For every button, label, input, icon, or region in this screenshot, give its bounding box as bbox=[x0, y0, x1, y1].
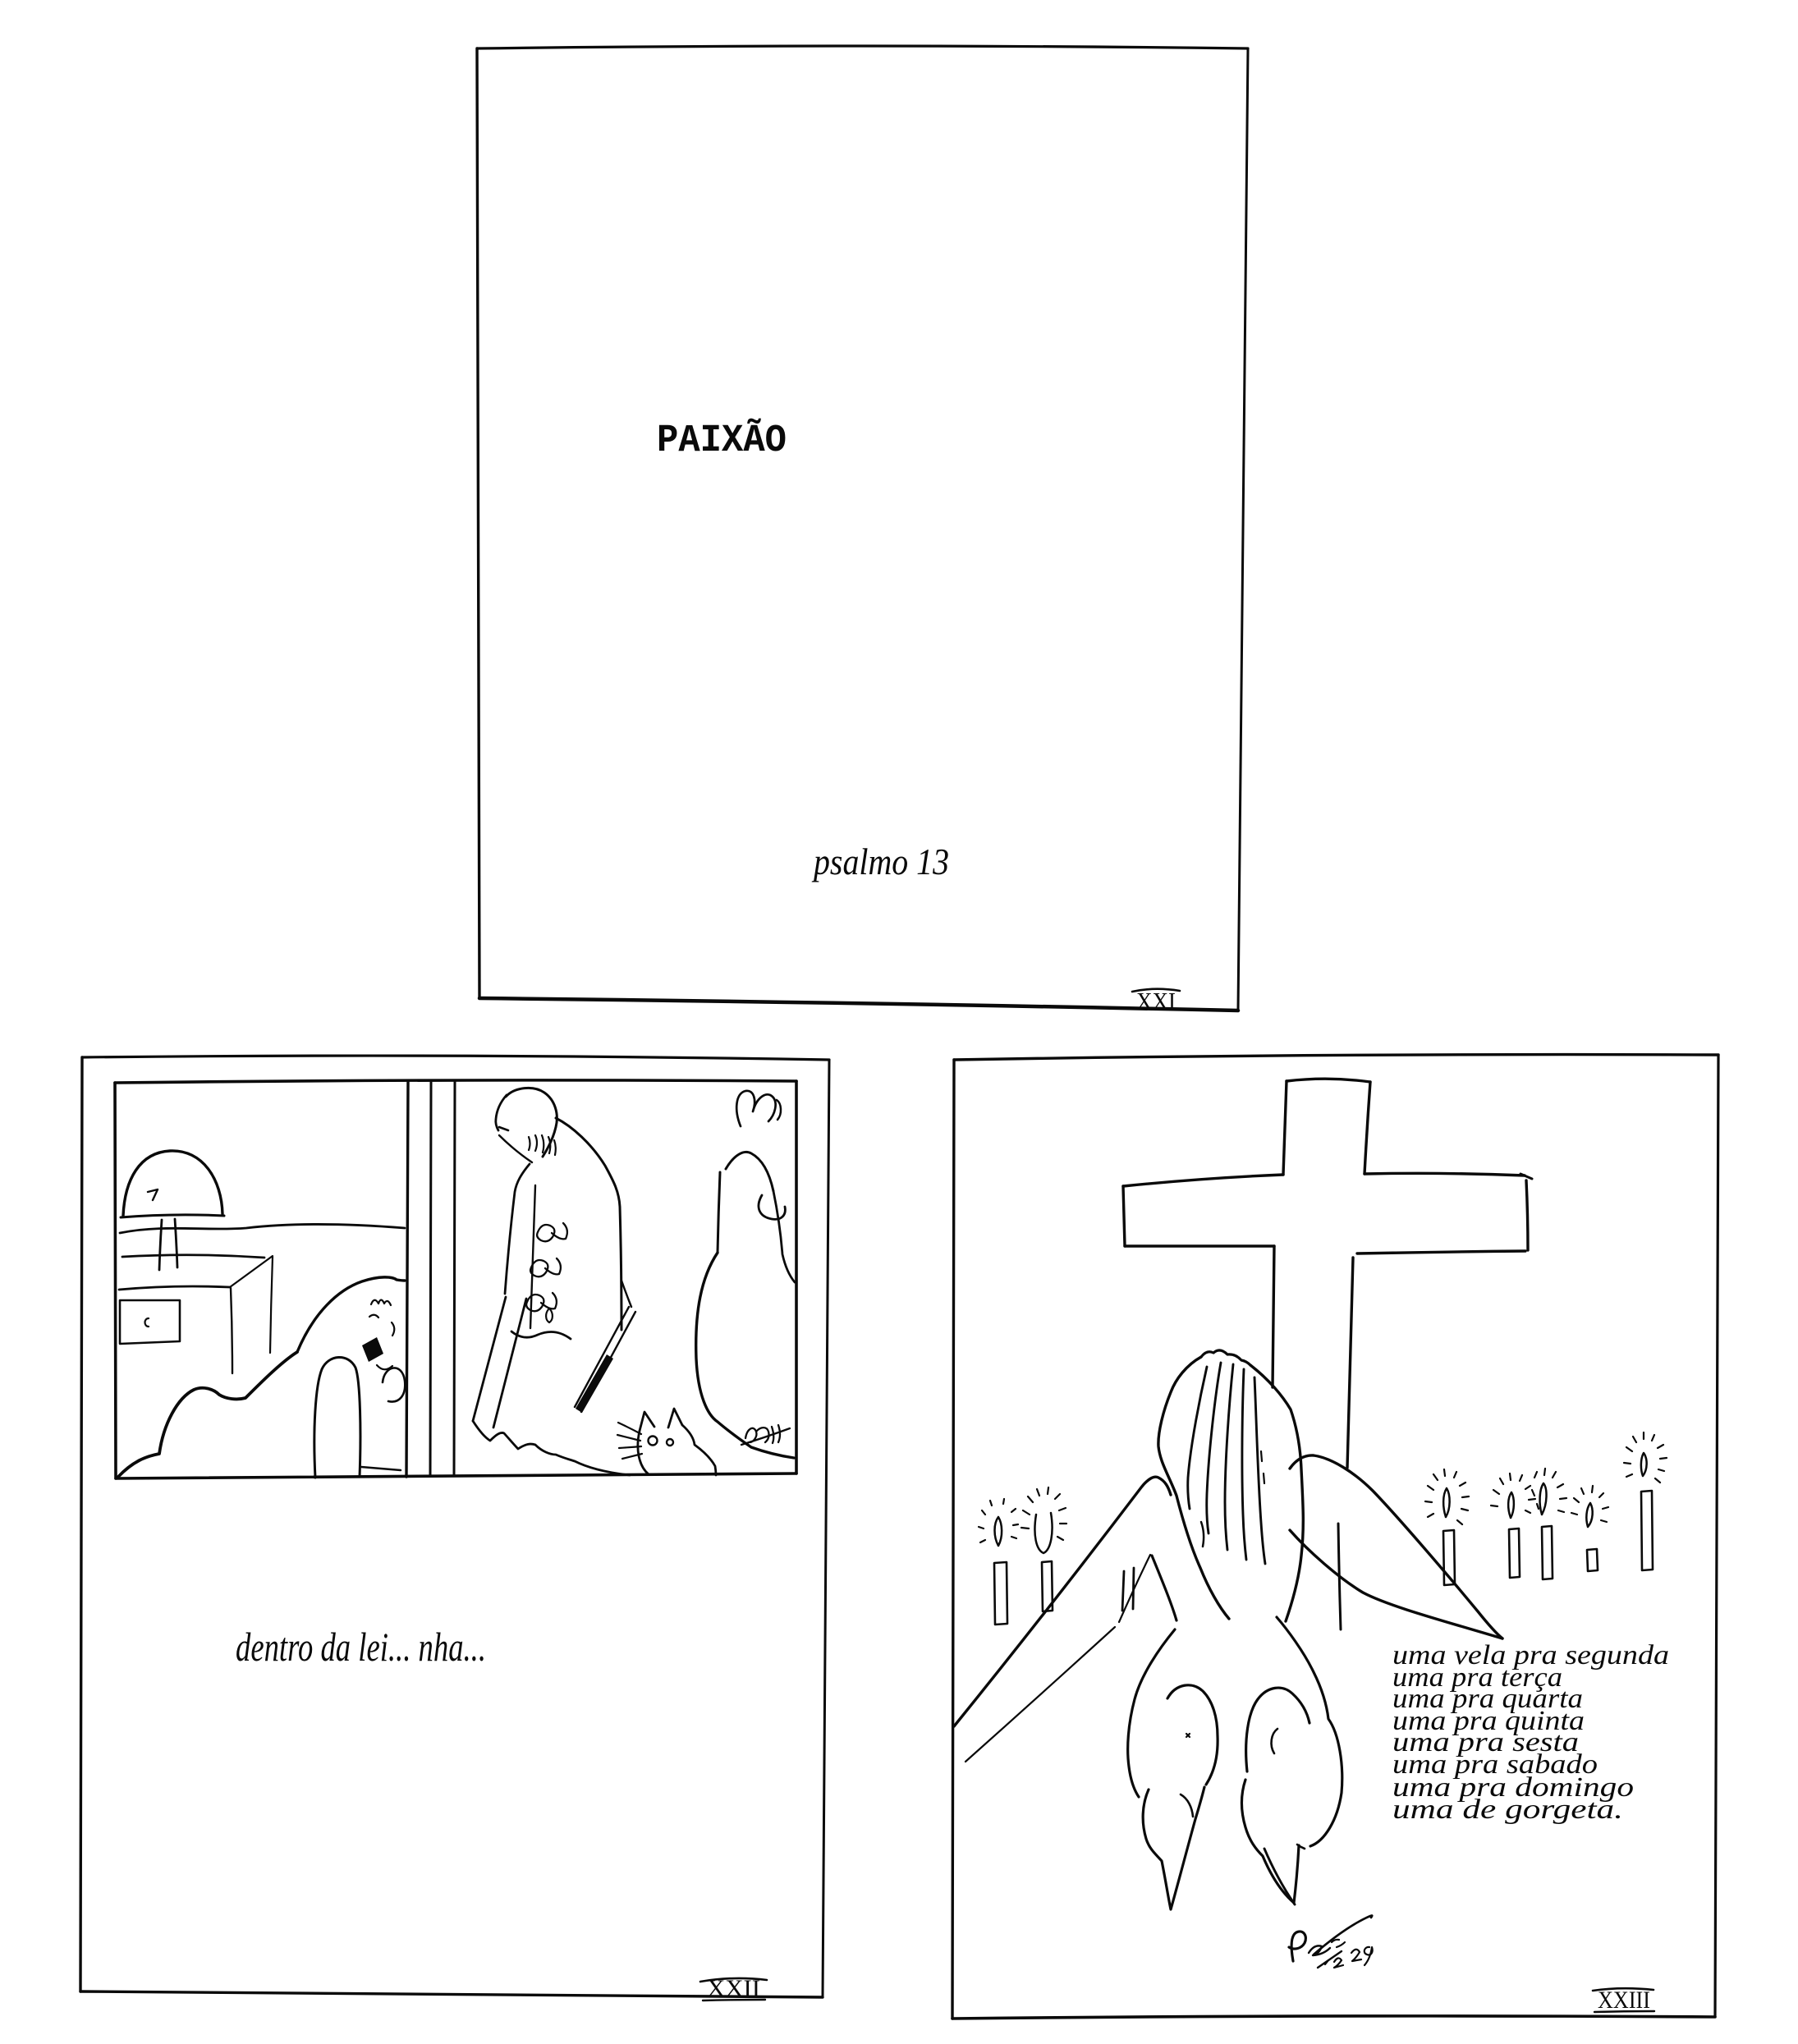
svg-text:XXIII: XXIII bbox=[1598, 1987, 1650, 2014]
svg-text:psalmo 13: psalmo 13 bbox=[811, 841, 949, 882]
svg-text:dentro da lei... nha...: dentro da lei... nha... bbox=[236, 1624, 486, 1670]
svg-text:PAIXÃO: PAIXÃO bbox=[657, 419, 787, 463]
svg-text:XXI: XXI bbox=[1136, 987, 1176, 1015]
svg-text:uma de gorgeta.: uma de gorgeta. bbox=[1392, 1794, 1623, 1825]
